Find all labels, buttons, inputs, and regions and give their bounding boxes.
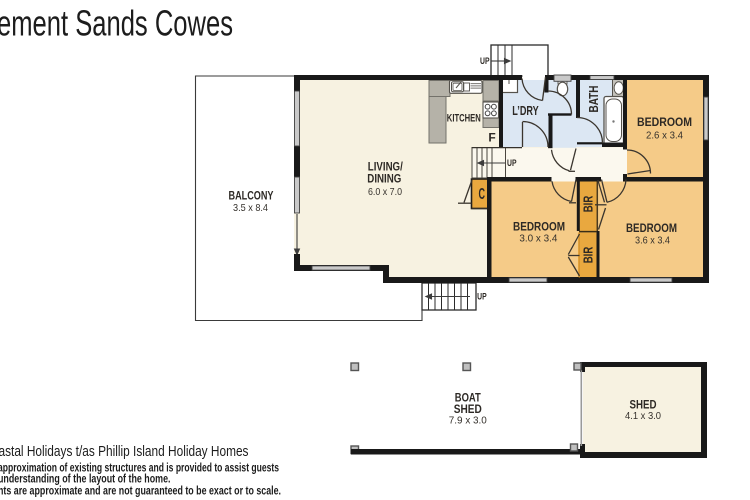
svg-text:2.6 x 3.4: 2.6 x 3.4 <box>646 130 683 142</box>
svg-text:3.6 x 3.4: 3.6 x 3.4 <box>635 235 670 247</box>
svg-text:BEDROOM: BEDROOM <box>513 220 565 234</box>
svg-text:UP: UP <box>477 291 487 301</box>
svg-text:BEDROOM: BEDROOM <box>626 221 677 235</box>
svg-text:BALCONY: BALCONY <box>229 189 274 203</box>
svg-text:BIR: BIR <box>582 196 596 213</box>
svg-text:7.9 x 3.0: 7.9 x 3.0 <box>449 415 487 427</box>
svg-text:DINING: DINING <box>367 172 401 186</box>
svg-text:L’DRY: L’DRY <box>512 104 539 118</box>
svg-text:astal Holidays t/as Phillip Is: astal Holidays t/as Phillip Island Holid… <box>0 444 249 460</box>
svg-text:BEDROOM: BEDROOM <box>637 115 692 129</box>
svg-text:nts are approximate and are no: nts are approximate and are not guarante… <box>0 484 281 498</box>
svg-text:BIR: BIR <box>582 247 596 264</box>
svg-text:3.0 x 3.4: 3.0 x 3.4 <box>519 233 557 245</box>
svg-text:3.5 x 8.4: 3.5 x 8.4 <box>233 202 268 214</box>
svg-text:UP: UP <box>507 158 517 168</box>
svg-text:6.0 x 7.0: 6.0 x 7.0 <box>368 186 402 198</box>
svg-text:ement Sands Cowes: ement Sands Cowes <box>0 3 233 44</box>
svg-text:BATH: BATH <box>587 86 601 113</box>
svg-text:UP: UP <box>480 56 490 66</box>
svg-text:4.1 x 3.0: 4.1 x 3.0 <box>625 410 661 422</box>
svg-text:F: F <box>488 131 495 145</box>
svg-text:C: C <box>479 186 486 203</box>
svg-text:KITCHEN: KITCHEN <box>447 112 481 124</box>
